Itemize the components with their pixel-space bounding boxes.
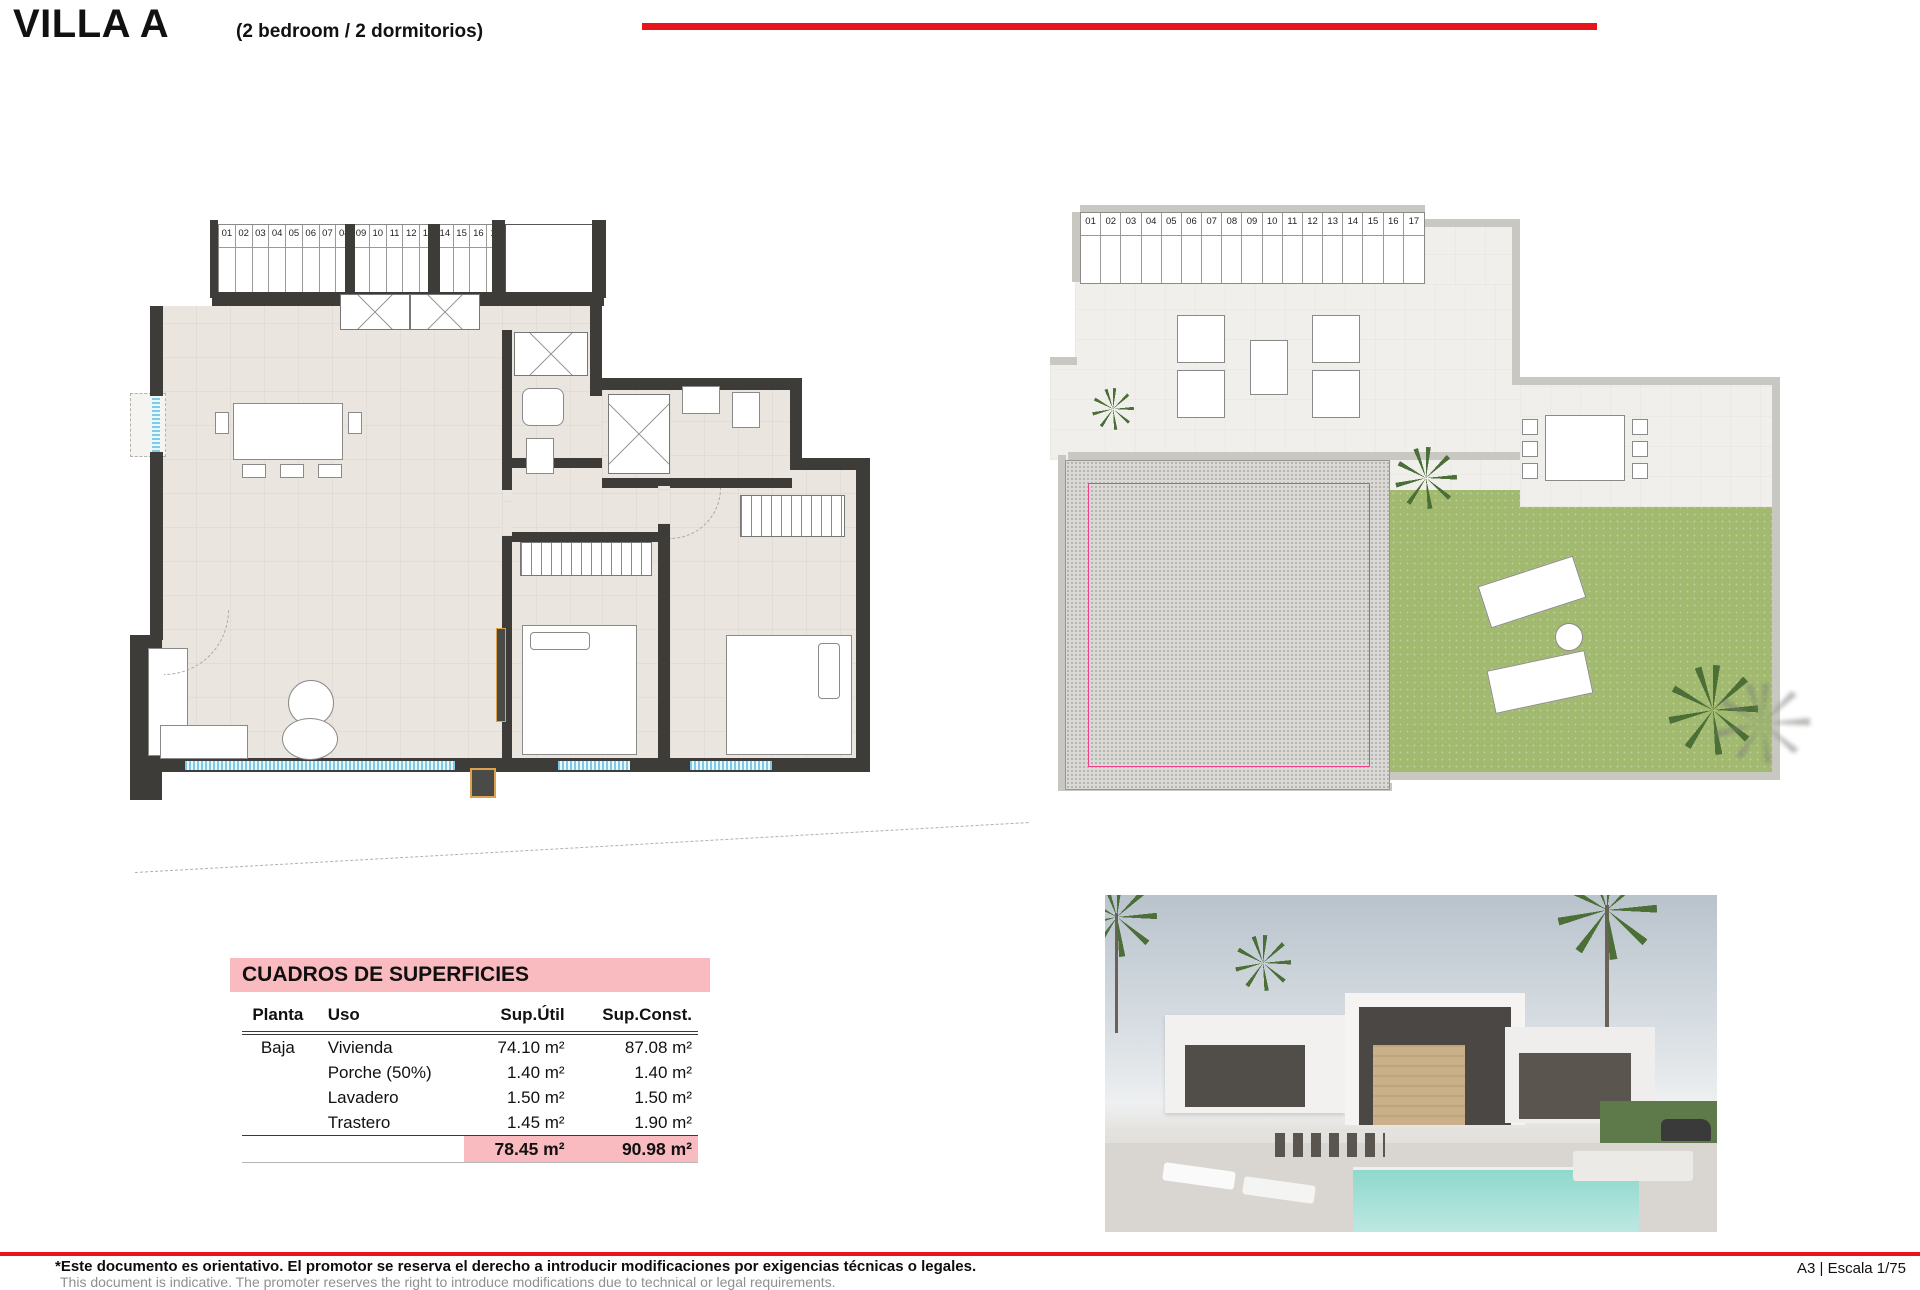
roof-edge [1068,452,1520,460]
dining-chair [348,412,362,434]
palm-tree [1395,447,1457,509]
page-title: VILLA A [13,2,169,47]
page-subtitle: (2 bedroom / 2 dormitorios) [236,21,483,43]
wall-right-outer [856,465,870,765]
roof-edge [1518,377,1780,385]
stair-step: 06 [1182,213,1202,283]
armchair [1312,370,1360,418]
window-salon [185,761,455,770]
staircase: 0102030405060708091011121314151617 [218,224,505,296]
shower-bano1 [608,394,670,474]
table-row: BajaVivienda74.10 m²87.08 m² [242,1033,698,1060]
table-row: Porche (50%)1.40 m²1.40 m² [242,1060,698,1085]
table-cell: Porche (50%) [314,1060,464,1085]
wall [210,220,218,298]
totals-cell: 78.45 m² [464,1136,575,1163]
column-header: Sup.Útil [464,1002,575,1033]
dining-chair [1632,441,1648,457]
table-row: Lavadero1.50 m²1.50 m² [242,1085,698,1110]
shower-bano2 [514,332,588,376]
table-row: Trastero1.45 m²1.90 m² [242,1110,698,1136]
wardrobe [520,542,652,576]
table-cell: 1.50 m² [575,1085,698,1110]
table-cell: 74.10 m² [464,1033,575,1060]
floorplan-roof: 0102030405060708091011121314151617 [1050,205,1795,840]
stair-step: 15 [1363,213,1383,283]
dining-chair [280,464,304,478]
palm-crown [1557,895,1657,960]
entry-door [470,768,496,798]
table-cell: Lavadero [314,1085,464,1110]
villa-stone-wall [1373,1045,1465,1125]
totals-cell [242,1136,314,1163]
table-cell [242,1085,314,1110]
table-cell [242,1110,314,1136]
column-header: Sup.Const. [575,1002,698,1033]
room-trastero [505,224,600,298]
wall-dorm3-top [512,532,660,542]
wall-bano1-right [790,378,802,470]
wall-left-lower [150,452,163,640]
dining-chair [318,464,342,478]
wall-bano1-bottom [602,478,792,488]
stair-step: 14 [1343,213,1363,283]
door-gap [502,490,512,536]
roof-edge [1512,225,1520,385]
stair-step: 15 [454,225,471,295]
table-header-row: PlantaUsoSup.ÚtilSup.Const. [242,1002,698,1033]
cubierta-dim-box [1088,483,1370,767]
window [152,396,160,452]
armchair [1177,315,1225,363]
outdoor-sofa [1573,1151,1693,1181]
car [1661,1119,1711,1141]
sofa [160,725,248,759]
table-cell: 1.40 m² [464,1060,575,1085]
villa-render-photo [1105,895,1717,1232]
stair-step: 09 [353,225,370,295]
totals-cell: 90.98 m² [575,1136,698,1163]
stair-step: 06 [303,225,320,295]
table-cell: 1.45 m² [464,1110,575,1136]
dining-chair [1522,441,1538,457]
dining-table [233,403,343,460]
stair-step: 09 [1242,213,1262,283]
table-totals-row: 78.45 m²90.98 m² [242,1136,698,1163]
dining-chair [1522,419,1538,435]
surface-table-title: CUADROS DE SUPERFICIES [230,958,710,992]
table-cell: 1.40 m² [575,1060,698,1085]
staircase: 0102030405060708091011121314151617 [1080,212,1425,284]
title-red-rule [642,23,1597,30]
footer-red-rule [0,1252,1920,1256]
stair-step: 08 [1222,213,1242,283]
column-header: Planta [242,1002,314,1033]
stair-step: 04 [269,225,286,295]
floorplan-ground: 0102030405060708091011121314151617 [130,180,920,845]
stair-step: 10 [370,225,387,295]
roof-edge [1425,219,1520,227]
wall-left-upper [150,306,163,396]
wall [428,224,440,298]
terrace-floor [1425,225,1520,285]
totals-cell [314,1136,464,1163]
wall [345,224,355,298]
outdoor-dining [1275,1133,1385,1157]
stair-step: 11 [1283,213,1303,283]
coffee-table [282,718,338,760]
window-dorm1 [690,761,772,770]
dining-chair [1632,463,1648,479]
kitchen-counter [340,294,410,330]
dining-chair [242,464,266,478]
stair-step: 04 [1142,213,1162,283]
stair-step: 10 [1263,213,1283,283]
stair-step: 11 [387,225,404,295]
dining-chair [1632,419,1648,435]
stair-step: 12 [403,225,420,295]
stair-step: 02 [236,225,253,295]
terrace-floor [1075,280,1520,460]
stair-step: 12 [1303,213,1323,283]
surface-table-grid: PlantaUsoSup.ÚtilSup.Const.BajaVivienda7… [242,1002,698,1163]
bath1-toilet [732,392,760,428]
dining-chair [1522,463,1538,479]
stair-step: 07 [1202,213,1222,283]
stair-step: 03 [1121,213,1141,283]
surface-table: CUADROS DE SUPERFICIES PlantaUsoSup.Útil… [230,958,710,1163]
table-cell: Baja [242,1033,314,1060]
coffee-table [1250,340,1288,395]
stair-step: 05 [286,225,303,295]
bath1-sink [682,386,720,414]
palm-crown [1235,935,1291,991]
dining-chair [215,412,229,434]
table-cell: Vivienda [314,1033,464,1060]
palm-shadow [1715,683,1810,763]
stair-step: 07 [320,225,337,295]
kitchen-counter [410,294,480,330]
footer-disclaimer-en: This document is indicative. The promote… [60,1274,836,1290]
palm-crown [1105,895,1157,957]
stair-step: 03 [253,225,270,295]
villa-window-band [1185,1045,1305,1107]
stair-step: 05 [1162,213,1182,283]
pillow [818,643,840,699]
table-cell: Trastero [314,1110,464,1136]
bush [1092,388,1134,430]
stair-step: 01 [1081,213,1101,283]
table-cell: 87.08 m² [575,1033,698,1060]
roof-edge [1050,357,1077,365]
side-table [1555,623,1583,651]
wall [592,220,606,298]
table-cell [242,1060,314,1085]
window-dorm3 [558,761,630,770]
stair-step: 01 [219,225,236,295]
armchair [1177,370,1225,418]
wall-bano2-right [590,306,602,396]
table-cell: 1.90 m² [575,1110,698,1136]
wall [492,220,505,298]
terrace-floor [1050,365,1077,460]
stair-step: 16 [470,225,487,295]
stair-step: 02 [1101,213,1121,283]
roof-edge [1072,212,1080,282]
stair-step: 13 [1323,213,1343,283]
footer-scale-label: A3 | Escala 1/75 [1797,1260,1906,1277]
dining-table [1545,415,1625,481]
bath2-toilet [526,438,554,474]
stair-step: 16 [1384,213,1404,283]
door-gap [658,486,670,524]
armchair [1312,315,1360,363]
bath2-sink [522,388,564,426]
roof-edge [1080,205,1425,212]
roof-edge [1390,772,1780,780]
dorm3-door-frame [496,628,506,722]
porch-outline [130,393,166,457]
pillow [530,632,590,650]
stair-step: 17 [1404,213,1424,283]
stairs-symbol [740,495,845,537]
table-cell: 1.50 m² [464,1085,575,1110]
column-header: Uso [314,1002,464,1033]
footer-disclaimer-es: *Este documento es orientativo. El promo… [55,1258,976,1275]
